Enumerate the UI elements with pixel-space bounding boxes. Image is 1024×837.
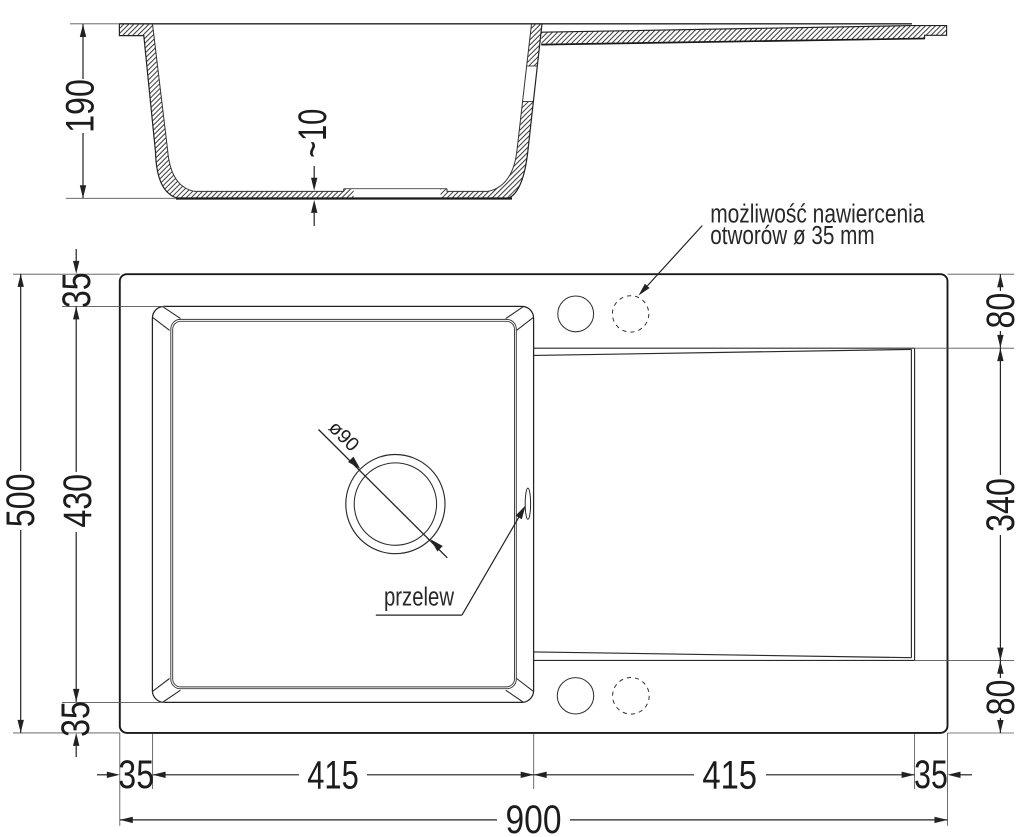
svg-text:otworów ø 35 mm: otworów ø 35 mm (710, 222, 874, 250)
svg-text:ø90: ø90 (324, 417, 363, 456)
svg-text:35: 35 (54, 701, 98, 737)
svg-text:80: 80 (979, 293, 1023, 329)
svg-text:500: 500 (0, 473, 43, 527)
svg-text:35: 35 (55, 272, 99, 308)
svg-text:430: 430 (56, 474, 100, 528)
svg-text:900: 900 (506, 798, 562, 837)
svg-text:35: 35 (118, 753, 154, 797)
svg-text:190: 190 (58, 79, 102, 133)
svg-text:415: 415 (702, 754, 757, 798)
svg-text:przelew: przelew (384, 584, 454, 612)
svg-text:415: 415 (307, 754, 359, 798)
svg-text:80: 80 (979, 680, 1023, 716)
svg-text:35: 35 (914, 753, 948, 797)
svg-text:~10: ~10 (291, 109, 335, 158)
svg-text:340: 340 (979, 478, 1023, 532)
